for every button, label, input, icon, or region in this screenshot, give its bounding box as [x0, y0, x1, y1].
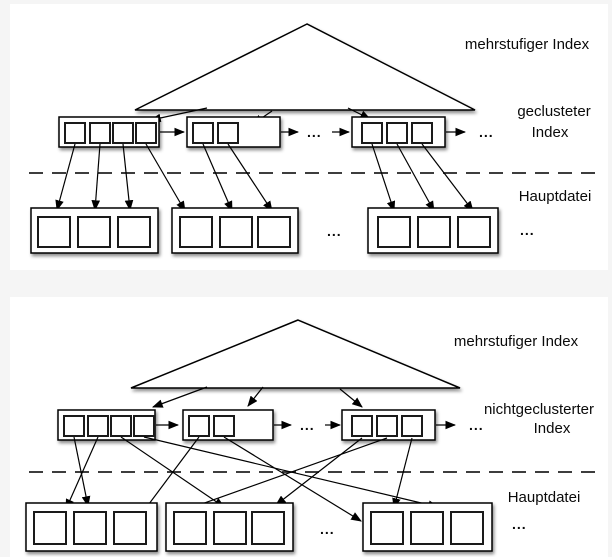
data-block-3 — [363, 503, 492, 551]
index-row-ellipsis-end: ... — [479, 124, 494, 140]
index-row-ellipsis-end: ... — [469, 417, 484, 433]
index-to-data-arrows — [57, 144, 473, 211]
nonclustered-index-panel: mehrstufiger Index ... ... nichtgecluste… — [10, 297, 608, 557]
multilevel-index-triangle — [135, 24, 475, 110]
multilevel-index-label: mehrstufiger Index — [454, 333, 579, 350]
data-row-ellipsis: ... — [327, 223, 342, 239]
index-block-1 — [59, 117, 159, 147]
data-row-ellipsis-end: ... — [512, 516, 527, 532]
diagram-page: { "colors": { "background": "#f5f5f5", "… — [0, 0, 612, 557]
clustered-index-label-line2: Index — [532, 124, 569, 141]
index-block-3 — [352, 117, 445, 147]
data-row-ellipsis: ... — [320, 521, 335, 537]
data-block-3 — [368, 208, 498, 253]
index-block-3 — [342, 410, 435, 440]
index-block-1 — [58, 410, 155, 440]
clustered-index-label-line1: geclusteter — [517, 103, 590, 120]
index-row-ellipsis: ... — [307, 124, 322, 140]
index-row-ellipsis: ... — [300, 417, 315, 433]
data-row-ellipsis-end: ... — [520, 222, 535, 238]
multilevel-index-label: mehrstufiger Index — [465, 36, 590, 53]
clustered-index-diagram: mehrstufiger Index ... ... geclusteter I… — [10, 4, 608, 270]
triangle-to-index-arrows — [153, 387, 362, 407]
main-file-label: Hauptdatei — [508, 489, 581, 506]
data-block-1 — [31, 208, 158, 253]
data-block-1 — [26, 503, 157, 551]
nonclustered-index-label-line1: nichtgeclusterter — [484, 401, 594, 418]
index-block-2 — [183, 410, 273, 440]
data-block-2 — [166, 503, 293, 551]
data-block-2 — [172, 208, 298, 253]
nonclustered-index-diagram: mehrstufiger Index ... ... nichtgecluste… — [10, 297, 608, 557]
index-block-2 — [187, 117, 280, 147]
nonclustered-index-label-line2: Index — [534, 420, 571, 437]
main-file-label: Hauptdatei — [519, 188, 592, 205]
multilevel-index-triangle — [131, 320, 460, 388]
clustered-index-panel: mehrstufiger Index ... ... geclusteter I… — [10, 4, 608, 270]
